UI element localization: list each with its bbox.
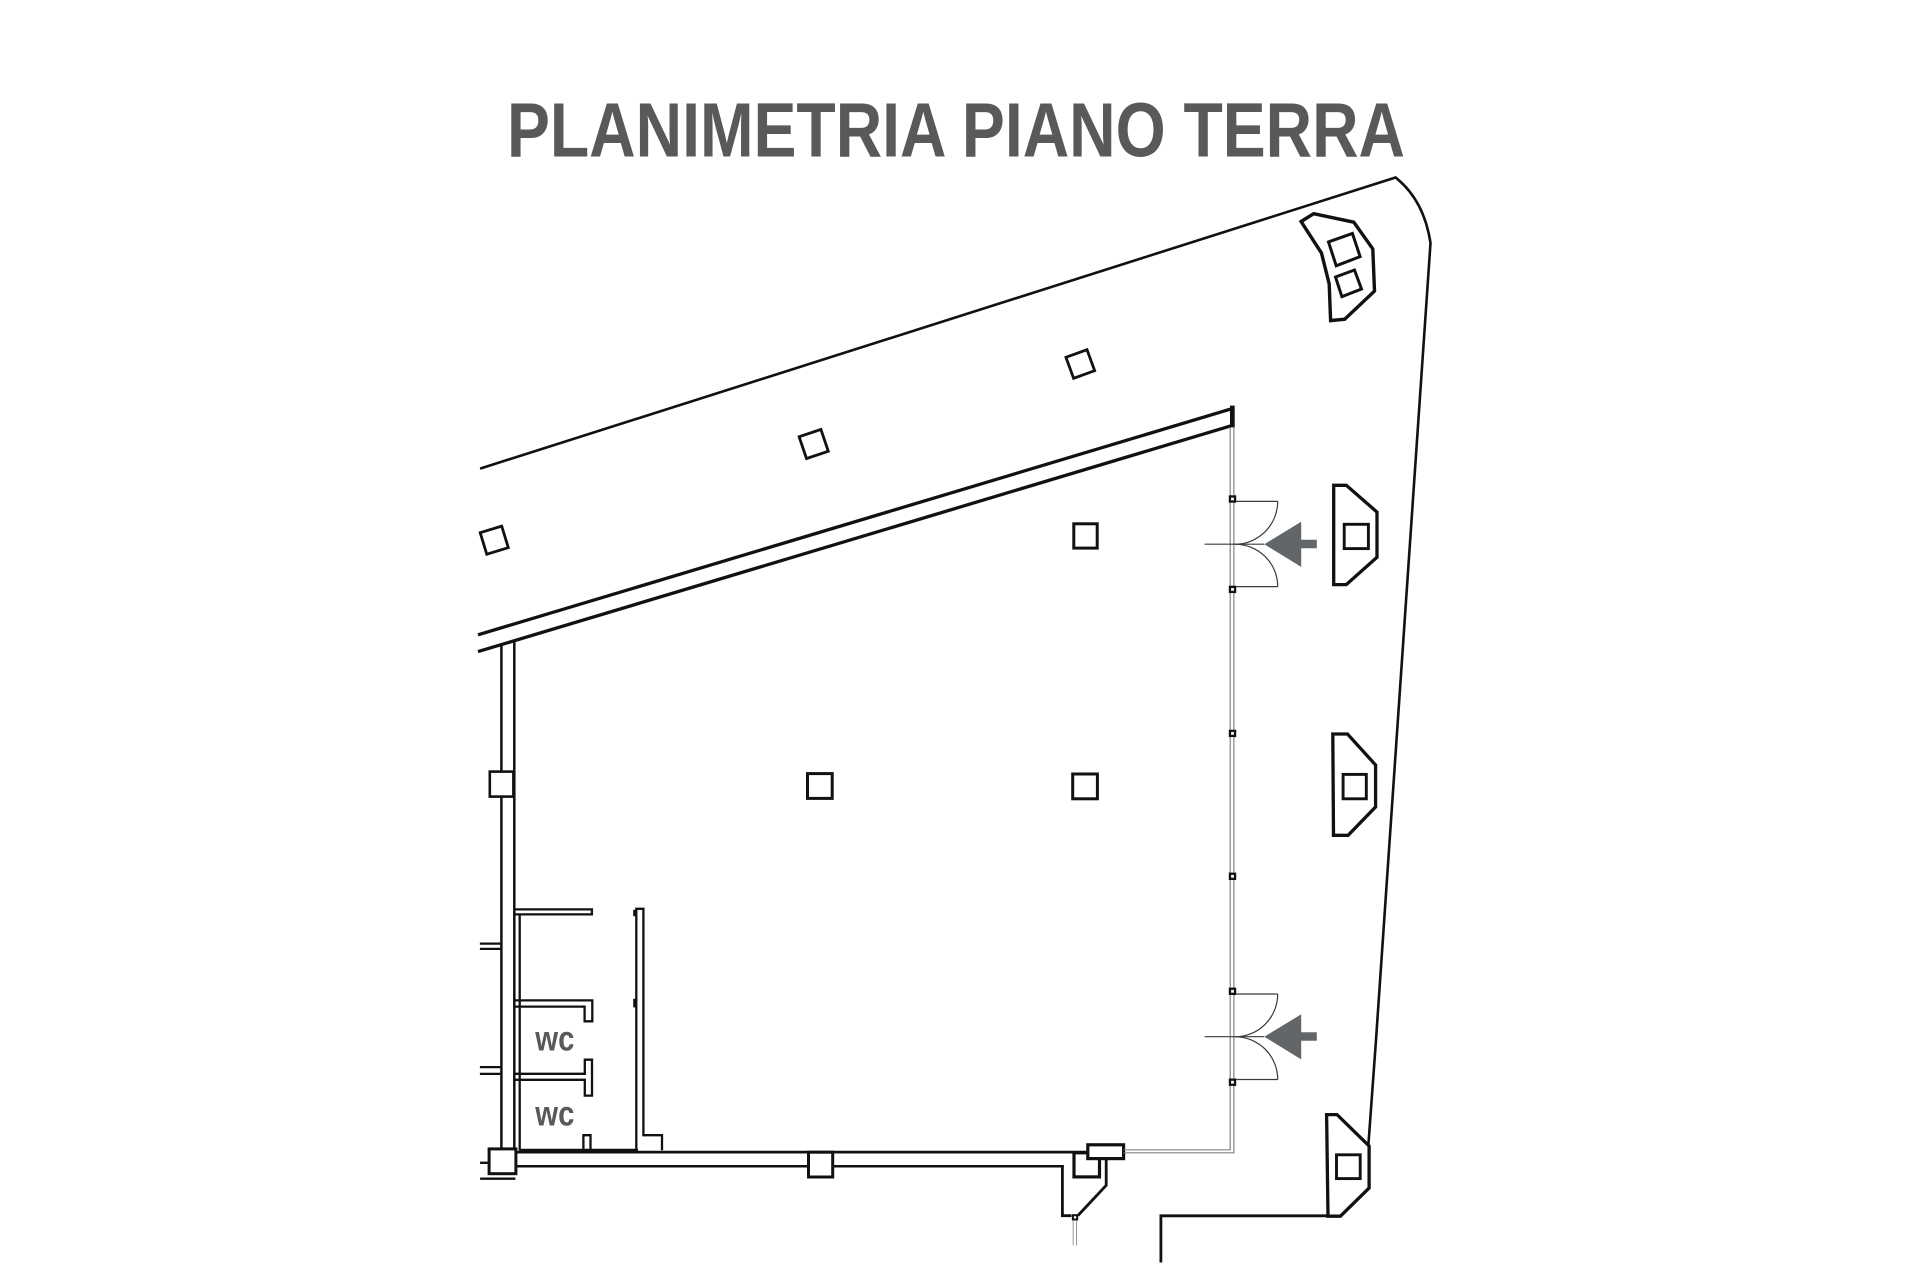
svg-text:PLANIMETRIA PIANO TERRA: PLANIMETRIA PIANO TERRA xyxy=(507,88,1405,174)
svg-text:wc: wc xyxy=(534,1019,574,1058)
svg-text:wc: wc xyxy=(534,1094,574,1133)
